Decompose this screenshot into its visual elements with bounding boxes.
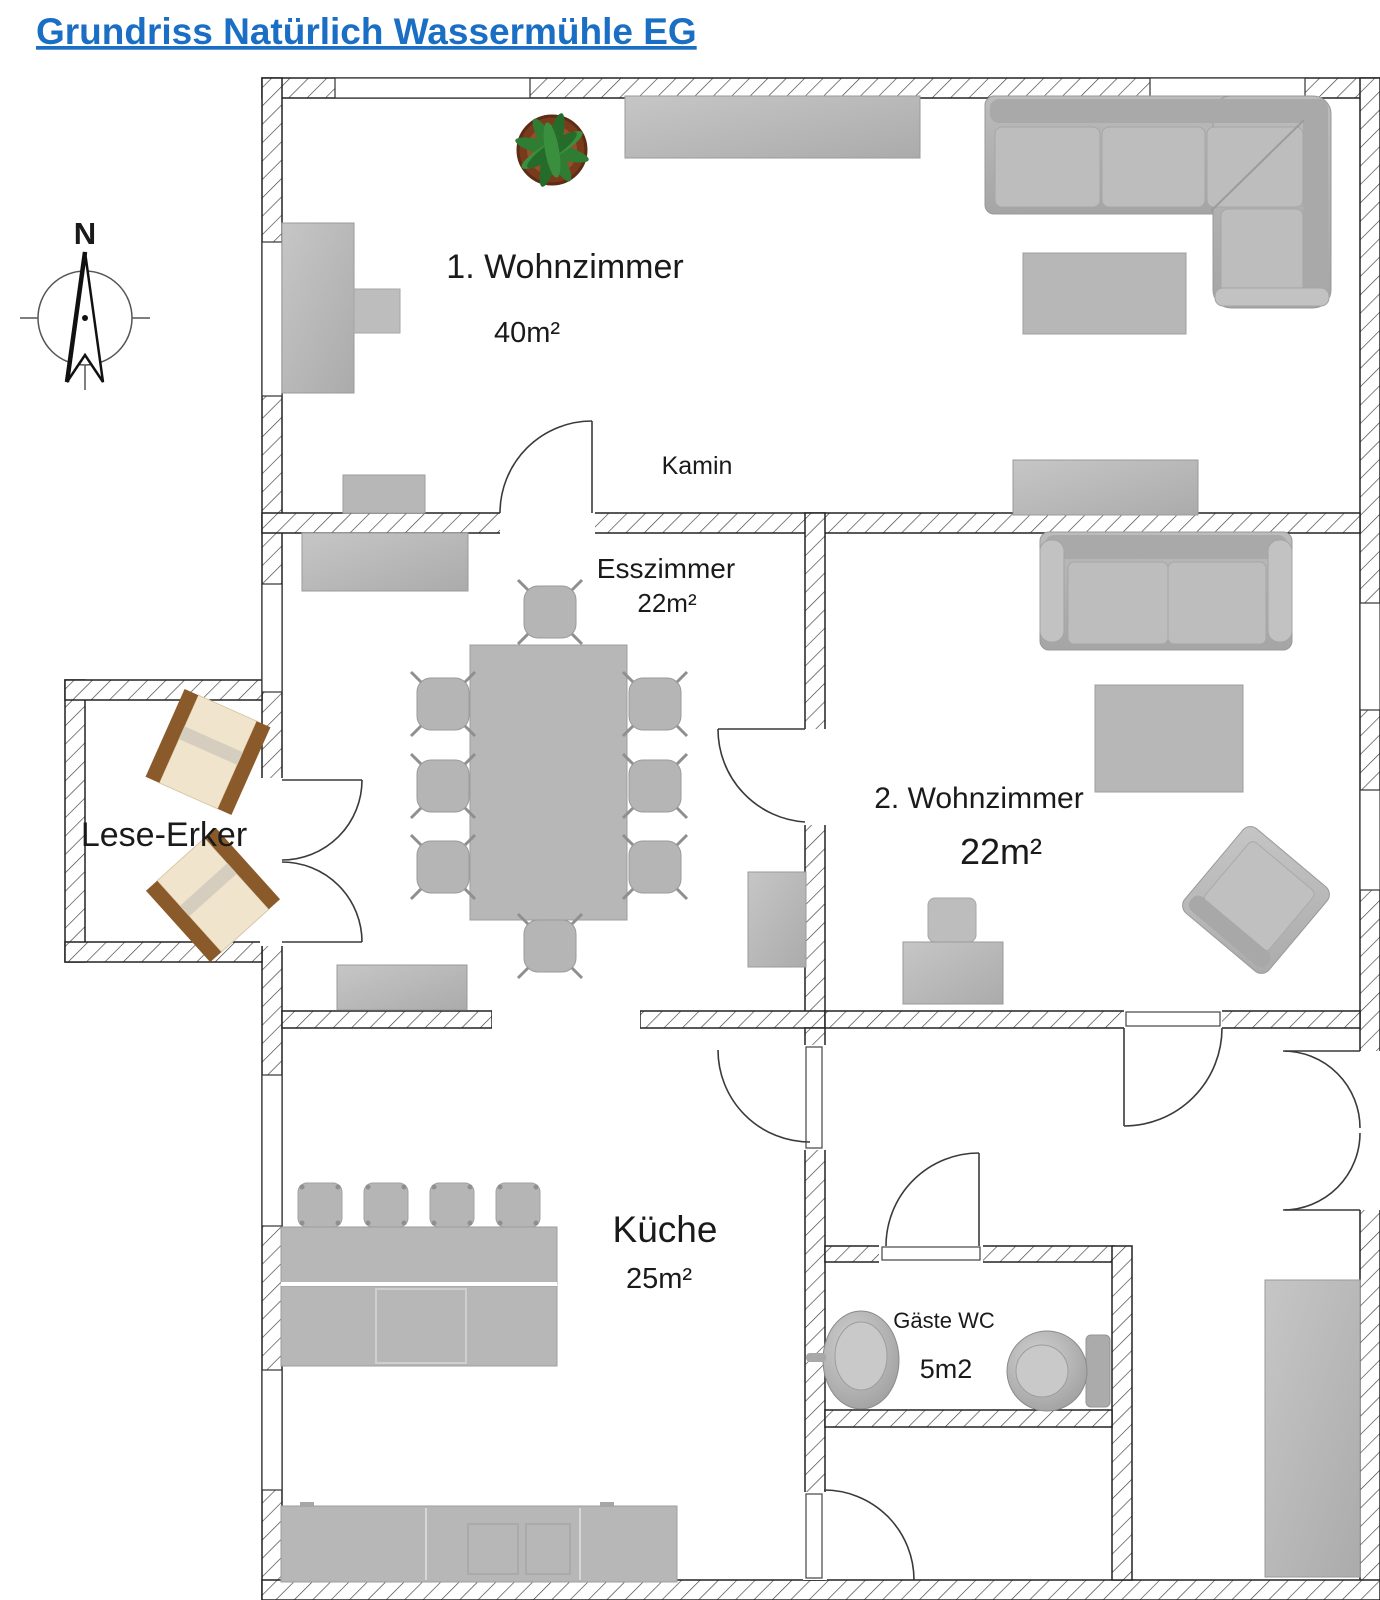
window-right-2 (1360, 790, 1380, 890)
door-esszimmer-wohnzimmer2 (718, 729, 805, 822)
label-kamin: Kamin (662, 452, 733, 480)
compass-rose: N (20, 216, 150, 390)
wall-wc-right (1112, 1246, 1132, 1580)
opening-esszimmer-kueche (492, 1009, 640, 1030)
window-left-1 (262, 242, 282, 396)
reading-armchair-1 (146, 689, 271, 815)
kitchen-counter (281, 1502, 677, 1582)
lowboard (337, 965, 467, 1010)
furniture-wohnzimmer2 (903, 532, 1333, 1004)
window-right-1 (1360, 603, 1380, 710)
area-kueche: 25m² (626, 1263, 692, 1295)
wall-erker-bottom (65, 942, 262, 962)
window-left-2 (262, 584, 282, 692)
sideboard (625, 96, 920, 158)
door-wohnzimmer1 (500, 421, 592, 513)
faucet (300, 1502, 314, 1507)
compass-north-label: N (74, 216, 96, 251)
window-top-1 (335, 78, 530, 98)
label-lese-erker: Lese-Erker (81, 816, 247, 854)
opening-hall-double-door (1358, 1051, 1380, 1210)
window-left-3 (262, 1075, 282, 1226)
wall-esszimmer-kueche-right (640, 1011, 825, 1028)
furniture-wc (806, 1280, 1360, 1577)
wall-esszimmer-kueche-left (282, 1011, 492, 1028)
label-wohnzimmer2: 2. Wohnzimmer (874, 782, 1084, 815)
furniture-esszimmer (302, 533, 806, 1010)
toilet (1007, 1331, 1110, 1411)
sink-faucet (806, 1353, 826, 1362)
desk-with-chair (282, 223, 400, 393)
wall-exterior-bottom (262, 1580, 1380, 1600)
wall-wc-bottom (825, 1410, 1112, 1427)
opening-lese-erker (260, 778, 284, 946)
page-title: Grundriss Natürlich Wassermühle EG (36, 11, 697, 52)
potted-plant (513, 111, 591, 189)
floorplan-page: N Grundriss Natürlich Wassermühle EG 1. … (0, 0, 1380, 1600)
label-gaeste-wc: Gäste WC (893, 1308, 995, 1333)
kitchen-island (281, 1227, 557, 1366)
door-kueche (718, 1047, 822, 1148)
floor-plan: N Grundriss Natürlich Wassermühle EG 1. … (0, 0, 1380, 1600)
opening-esszimmer-wohnzimmer2 (803, 729, 827, 825)
area-wohnzimmer2: 22m² (960, 831, 1042, 872)
bar-stools (298, 1183, 540, 1227)
fireplace (1013, 460, 1198, 515)
hall-wardrobe (1265, 1280, 1360, 1577)
armchair (1179, 823, 1334, 978)
coffee-table (1095, 685, 1243, 792)
cabinet (748, 872, 806, 967)
sofa (1040, 532, 1292, 650)
double-door-lese-erker (282, 780, 362, 942)
label-kueche: Küche (613, 1209, 718, 1250)
double-door-hall-right (1283, 1051, 1360, 1210)
wall-erker-top (65, 680, 262, 700)
wall-wohnzimmer2-hall (825, 1011, 1360, 1028)
window-top-2 (1150, 78, 1305, 98)
label-wohnzimmer1: 1. Wohnzimmer (446, 248, 683, 286)
hob-knob (600, 1502, 614, 1507)
window-left-4 (262, 1370, 282, 1490)
furniture-wohnzimmer1 (282, 96, 1331, 515)
door-pantry (806, 1490, 914, 1580)
sideboard (302, 533, 468, 591)
door-wc (882, 1153, 980, 1260)
area-gaeste-wc: 5m2 (920, 1354, 973, 1384)
desk-with-chair (903, 898, 1003, 1004)
area-esszimmer: 22m² (637, 588, 697, 618)
radiator-unit (343, 475, 425, 513)
coffee-table (1023, 253, 1186, 334)
dining-table (470, 645, 627, 920)
label-esszimmer: Esszimmer (597, 553, 735, 584)
area-wohnzimmer1: 40m² (494, 317, 560, 349)
opening-wohnzimmer1-door (500, 511, 595, 535)
